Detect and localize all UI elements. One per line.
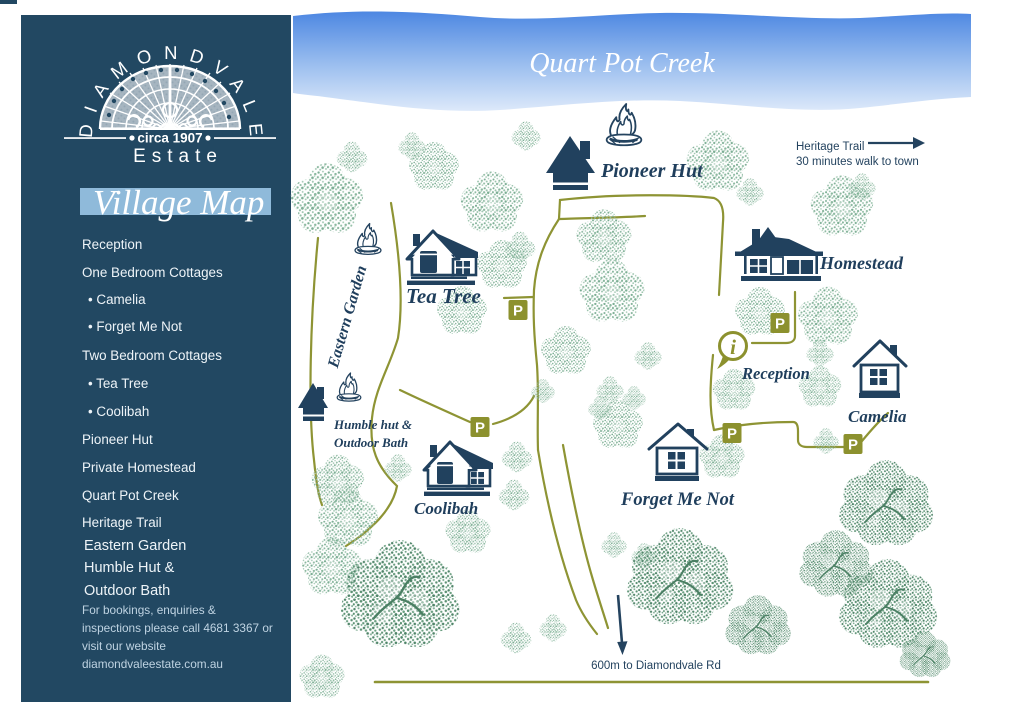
svg-text:• Tea Tree: • Tea Tree [88,376,148,391]
svg-text:Eastern Garden: Eastern Garden [84,538,186,554]
svg-text:circa 1907: circa 1907 [137,131,202,146]
svg-text:Coolibah: Coolibah [414,499,478,518]
svg-text:Outdoor Bath: Outdoor Bath [334,435,408,450]
svg-text:One Bedroom Cottages: One Bedroom Cottages [82,265,223,280]
svg-text:Quart Pot Creek: Quart Pot Creek [82,488,179,503]
svg-text:Heritage Trail: Heritage Trail [796,141,864,153]
svg-text:Village Map: Village Map [93,183,264,222]
svg-text:Pioneer Hut: Pioneer Hut [82,432,153,447]
svg-text:Heritage Trail: Heritage Trail [82,515,162,530]
svg-text:Humble hut &: Humble hut & [333,417,412,432]
svg-text:Forget Me Not: Forget Me Not [620,490,735,510]
svg-text:Reception: Reception [82,237,142,252]
svg-text:Two Bedroom Cottages: Two Bedroom Cottages [82,348,222,363]
svg-text:Homestead: Homestead [819,253,904,273]
svg-text:Quart Pot Creek: Quart Pot Creek [529,48,715,79]
svg-text:Private Homestead: Private Homestead [82,460,196,475]
svg-text:visit our website: visit our website [82,639,166,653]
svg-text:30 minutes walk to town: 30 minutes walk to town [796,156,919,168]
svg-text:Humble Hut &: Humble Hut & [84,560,175,576]
svg-text:For bookings, enquiries &: For bookings, enquiries & [82,603,216,617]
svg-text:inspections please call 4681 3: inspections please call 4681 3367 or [82,621,273,635]
svg-text:Estate: Estate [133,146,223,167]
svg-text:diamondvaleestate.com.au: diamondvaleestate.com.au [82,657,223,671]
svg-text:Tea Tree: Tea Tree [406,284,481,308]
svg-text:600m to Diamondvale Rd: 600m to Diamondvale Rd [591,660,721,672]
svg-text:• Coolibah: • Coolibah [88,404,149,419]
svg-text:Camelia: Camelia [848,407,907,426]
svg-text:Pioneer Hut: Pioneer Hut [600,160,704,182]
svg-text:Eastern Garden: Eastern Garden [325,264,371,371]
svg-text:• Camelia: • Camelia [88,292,146,307]
svg-text:i: i [730,335,736,359]
svg-text:• Forget Me Not: • Forget Me Not [88,319,182,334]
svg-text:Outdoor Bath: Outdoor Bath [84,583,170,599]
svg-text:Reception: Reception [741,364,810,383]
